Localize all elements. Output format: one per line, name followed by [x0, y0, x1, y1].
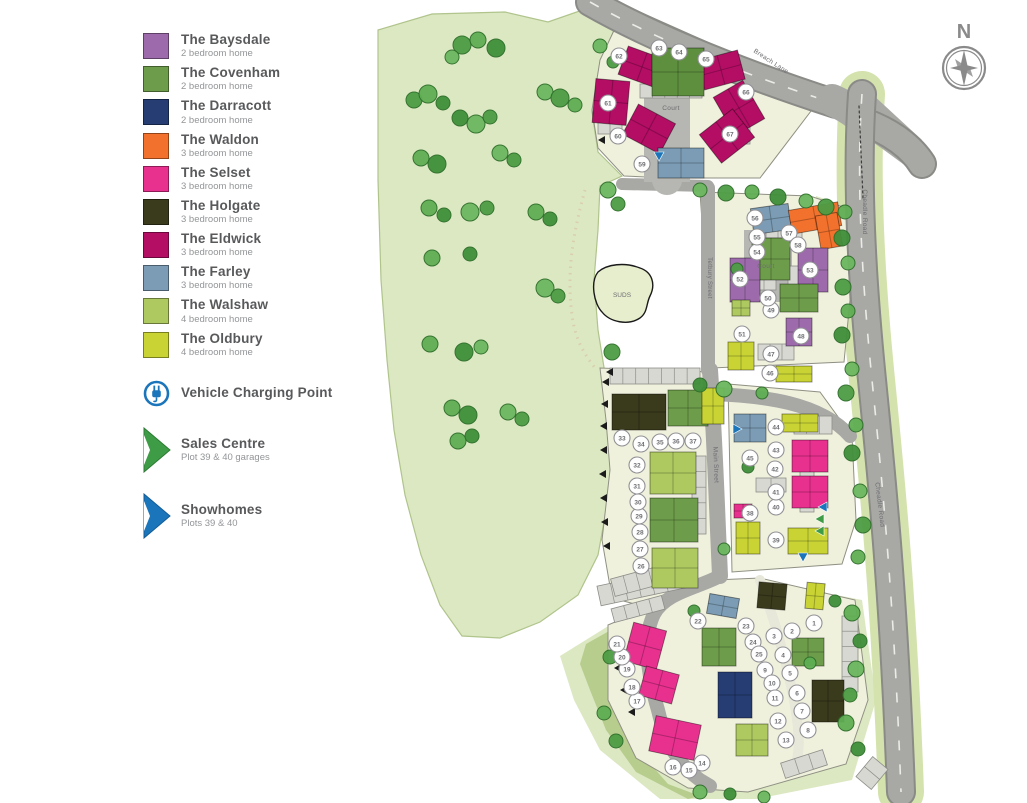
tree-icon: [716, 381, 732, 397]
sales-centre-label: Sales Centre: [181, 437, 270, 451]
plot-marker-40[interactable]: 40: [768, 499, 784, 515]
house-walshaw: [650, 452, 696, 494]
plot-marker-2[interactable]: 2: [784, 623, 800, 639]
tree-icon: [853, 484, 867, 498]
tree-icon: [770, 189, 786, 205]
tree-icon: [724, 788, 736, 800]
tree-icon: [444, 400, 460, 416]
tree-icon: [834, 327, 850, 343]
tree-icon: [718, 185, 734, 201]
tree-icon: [838, 715, 854, 731]
tree-icon: [604, 344, 620, 360]
tree-icon: [480, 201, 494, 215]
tree-icon: [844, 605, 860, 621]
tree-icon: [428, 155, 446, 173]
house-selset: [792, 476, 828, 508]
plot-marker-18[interactable]: 18: [624, 679, 640, 695]
svg-text:23: 23: [742, 623, 750, 630]
svg-text:9: 9: [763, 667, 767, 674]
plot-marker-27[interactable]: 27: [632, 541, 648, 557]
house-walshaw: [652, 548, 698, 588]
tree-icon: [745, 185, 759, 199]
plot-marker-37[interactable]: 37: [685, 433, 701, 449]
house-holgate: [612, 394, 666, 430]
legend-item-farley: The Farley 3 bedroom home: [143, 265, 393, 291]
svg-text:20: 20: [618, 654, 626, 661]
svg-text:65: 65: [702, 56, 710, 63]
legend-label: The Darracott: [181, 99, 271, 113]
svg-text:6: 6: [795, 690, 799, 697]
tree-icon: [756, 387, 768, 399]
svg-text:7: 7: [800, 708, 804, 715]
legend-sublabel: 3 bedroom home: [181, 214, 260, 225]
road-label: Court: [662, 105, 679, 112]
plot-marker-63[interactable]: 63: [651, 40, 667, 56]
showhomes-label: Showhomes: [181, 503, 262, 517]
tree-icon: [844, 445, 860, 461]
baysdale-swatch: [143, 33, 169, 59]
covenham-swatch: [143, 66, 169, 92]
svg-text:4: 4: [781, 652, 785, 659]
svg-text:43: 43: [772, 447, 780, 454]
svg-text:53: 53: [806, 267, 814, 274]
house-holgate: [757, 582, 787, 610]
legend-label: The Covenham: [181, 66, 280, 80]
svg-text:2: 2: [790, 628, 794, 635]
plot-marker-11[interactable]: 11: [767, 690, 783, 706]
plot-marker-1[interactable]: 1: [806, 615, 822, 631]
plot-marker-23[interactable]: 23: [738, 618, 754, 634]
svg-text:36: 36: [672, 438, 680, 445]
legend-sublabel: 2 bedroom home: [181, 115, 271, 126]
oldbury-swatch: [143, 332, 169, 358]
svg-text:40: 40: [772, 504, 780, 511]
tree-icon: [421, 200, 437, 216]
svg-text:34: 34: [637, 441, 645, 448]
svg-text:41: 41: [772, 489, 780, 496]
house-oldbury: [782, 414, 818, 432]
plot-marker-67[interactable]: 67: [722, 126, 738, 142]
plot-marker-36[interactable]: 36: [668, 433, 684, 449]
svg-text:15: 15: [685, 767, 693, 774]
tree-icon: [413, 150, 429, 166]
tree-icon: [459, 406, 477, 424]
tree-icon: [487, 39, 505, 57]
legend-label: The Waldon: [181, 133, 259, 147]
eldwick-swatch: [143, 232, 169, 258]
tree-icon: [609, 734, 623, 748]
svg-text:30: 30: [634, 499, 642, 506]
svg-text:60: 60: [614, 133, 622, 140]
tree-icon: [804, 657, 816, 669]
tree-icon: [467, 115, 485, 133]
road-label: Main Street: [711, 447, 719, 484]
plot-marker-56[interactable]: 56: [747, 210, 763, 226]
svg-text:11: 11: [772, 695, 779, 702]
plot-marker-8[interactable]: 8: [800, 722, 816, 738]
svg-text:38: 38: [746, 510, 754, 517]
svg-text:25: 25: [755, 651, 763, 658]
tree-icon: [528, 204, 544, 220]
plot-marker-54[interactable]: 54: [749, 244, 765, 260]
svg-text:18: 18: [628, 684, 636, 691]
tree-icon: [600, 182, 616, 198]
tree-icon: [465, 429, 479, 443]
house-covenham: [702, 628, 736, 666]
tree-icon: [818, 199, 834, 215]
svg-text:59: 59: [638, 161, 646, 168]
svg-text:64: 64: [675, 49, 683, 56]
legend-sublabel: 4 bedroom home: [181, 314, 268, 325]
tree-icon: [841, 256, 855, 270]
plot-marker-28[interactable]: 28: [632, 524, 648, 540]
svg-text:57: 57: [785, 230, 793, 237]
house-farley: [658, 148, 704, 178]
tree-icon: [838, 385, 854, 401]
plot-marker-30[interactable]: 30: [630, 494, 646, 510]
house-oldbury: [728, 342, 754, 370]
tree-icon: [436, 96, 450, 110]
legend-sublabel: 3 bedroom home: [181, 247, 261, 258]
tree-icon: [851, 550, 865, 564]
plot-marker-7[interactable]: 7: [794, 703, 810, 719]
showhomes-arrow-icon: [143, 493, 171, 539]
farley-swatch: [143, 265, 169, 291]
svg-text:39: 39: [772, 537, 780, 544]
svg-text:16: 16: [669, 764, 677, 771]
svg-text:56: 56: [751, 215, 759, 222]
tree-icon: [452, 110, 468, 126]
legend-label: The Farley: [181, 265, 253, 279]
house-darracott: [718, 672, 752, 718]
sales-centre-arrow-icon: [143, 427, 171, 473]
tree-icon: [593, 39, 607, 53]
tree-icon: [445, 50, 459, 64]
tree-icon: [853, 634, 867, 648]
plot-marker-53[interactable]: 53: [802, 262, 818, 278]
sales-centre-sublabel: Plot 39 & 40 garages: [181, 452, 270, 463]
plot-marker-33[interactable]: 33: [614, 430, 630, 446]
legend-item-walshaw: The Walshaw 4 bedroom home: [143, 298, 393, 324]
svg-text:10: 10: [768, 680, 776, 687]
walshaw-swatch: [143, 298, 169, 324]
tree-icon: [829, 595, 841, 607]
legend-item-sales-centre: Sales Centre Plot 39 & 40 garages: [143, 427, 393, 473]
tree-icon: [693, 785, 707, 799]
legend-item-oldbury: The Oldbury 4 bedroom home: [143, 332, 393, 358]
road-label: Court: [757, 263, 774, 270]
plot-marker-51[interactable]: 51: [734, 326, 750, 342]
tree-icon: [597, 706, 611, 720]
plot-marker-48[interactable]: 48: [793, 328, 809, 344]
house-oldbury: [805, 582, 825, 609]
house-walshaw: [736, 724, 768, 756]
plot-marker-39[interactable]: 39: [768, 532, 784, 548]
plot-marker-21[interactable]: 21: [609, 636, 625, 652]
legend-sublabel: 2 bedroom home: [181, 81, 280, 92]
compass-rose-icon: [940, 44, 988, 92]
plot-marker-26[interactable]: 26: [633, 558, 649, 574]
house-selset: [792, 440, 828, 472]
legend-label: The Selset: [181, 166, 253, 180]
selset-swatch: [143, 166, 169, 192]
road-label: Cheadle Road: [861, 189, 868, 234]
svg-text:54: 54: [753, 249, 761, 256]
darracott-swatch: [143, 99, 169, 125]
tree-icon: [419, 85, 437, 103]
plot-marker-3[interactable]: 3: [766, 628, 782, 644]
suds-label: SUDS: [613, 292, 632, 299]
tree-icon: [835, 279, 851, 295]
plot-marker-66[interactable]: 66: [738, 84, 754, 100]
svg-text:50: 50: [764, 295, 772, 302]
house-oldbury: [776, 366, 812, 382]
svg-text:51: 51: [738, 331, 746, 338]
plot-marker-44[interactable]: 44: [768, 419, 784, 435]
legend-sublabel: 3 bedroom home: [181, 181, 253, 192]
tree-icon: [758, 791, 770, 803]
house-walshaw: [732, 300, 750, 316]
plot-marker-31[interactable]: 31: [629, 478, 645, 494]
plot-marker-25[interactable]: 25: [751, 646, 767, 662]
tree-icon: [463, 247, 477, 261]
tree-icon: [483, 110, 497, 124]
legend: The Baysdale 2 bedroom home The Covenham…: [143, 33, 393, 539]
svg-text:35: 35: [656, 439, 664, 446]
plot-marker-32[interactable]: 32: [629, 457, 645, 473]
tree-icon: [437, 208, 451, 222]
charging-label: Vehicle Charging Point: [181, 386, 332, 400]
tree-icon: [841, 304, 855, 318]
waldon-swatch: [143, 133, 169, 159]
site-plan-page: SUDS123456789101112131415161718192021222…: [0, 0, 1027, 803]
svg-text:66: 66: [742, 89, 750, 96]
compass-north-label: N: [938, 22, 990, 42]
legend-sublabel: 4 bedroom home: [181, 347, 263, 358]
svg-text:29: 29: [635, 513, 643, 520]
tree-icon: [500, 404, 516, 420]
tree-icon: [424, 250, 440, 266]
svg-text:22: 22: [694, 618, 702, 625]
plot-marker-5[interactable]: 5: [782, 665, 798, 681]
plot-marker-12[interactable]: 12: [770, 713, 786, 729]
svg-text:58: 58: [794, 242, 802, 249]
plot-marker-58[interactable]: 58: [790, 237, 806, 253]
svg-text:31: 31: [633, 483, 641, 490]
plot-marker-42[interactable]: 42: [767, 461, 783, 477]
house-oldbury: [736, 522, 760, 554]
legend-item-covenham: The Covenham 2 bedroom home: [143, 66, 393, 92]
svg-text:26: 26: [637, 563, 645, 570]
svg-text:33: 33: [618, 435, 626, 442]
house-covenham: [780, 284, 818, 312]
tree-icon: [799, 194, 813, 208]
tree-icon: [455, 343, 473, 361]
svg-text:45: 45: [746, 455, 754, 462]
plot-marker-45[interactable]: 45: [742, 450, 758, 466]
legend-sublabel: 2 bedroom home: [181, 48, 270, 59]
svg-text:52: 52: [736, 276, 744, 283]
legend-label: The Eldwick: [181, 232, 261, 246]
tree-icon: [834, 230, 850, 246]
plot-marker-52[interactable]: 52: [732, 271, 748, 287]
svg-text:62: 62: [615, 53, 623, 60]
legend-item-darracott: The Darracott 2 bedroom home: [143, 99, 393, 125]
showhomes-sublabel: Plots 39 & 40: [181, 518, 262, 529]
tree-icon: [851, 742, 865, 756]
tree-icon: [611, 197, 625, 211]
tree-icon: [492, 145, 508, 161]
plot-marker-55[interactable]: 55: [749, 229, 765, 245]
vehicle-charging-icon: [143, 380, 171, 407]
legend-label: The Holgate: [181, 199, 260, 213]
tree-icon: [568, 98, 582, 112]
svg-text:44: 44: [772, 424, 780, 431]
tree-icon: [849, 418, 863, 432]
tree-icon: [551, 289, 565, 303]
svg-text:55: 55: [753, 234, 761, 241]
plot-marker-43[interactable]: 43: [768, 442, 784, 458]
legend-label: The Walshaw: [181, 298, 268, 312]
svg-text:28: 28: [636, 529, 644, 536]
plot-marker-62[interactable]: 62: [611, 48, 627, 64]
plot-marker-34[interactable]: 34: [633, 436, 649, 452]
svg-text:8: 8: [806, 727, 810, 734]
house-holgate: [812, 680, 844, 722]
svg-text:13: 13: [782, 737, 790, 744]
legend-sublabel: 3 bedroom home: [181, 280, 253, 291]
tree-icon: [470, 32, 486, 48]
plot-marker-6[interactable]: 6: [789, 685, 805, 701]
legend-label: The Baysdale: [181, 33, 270, 47]
svg-text:67: 67: [726, 131, 734, 138]
svg-text:47: 47: [767, 351, 775, 358]
tree-icon: [507, 153, 521, 167]
svg-text:37: 37: [689, 438, 697, 445]
legend-item-selset: The Selset 3 bedroom home: [143, 166, 393, 192]
svg-text:3: 3: [772, 633, 776, 640]
svg-text:48: 48: [797, 333, 805, 340]
svg-text:61: 61: [604, 100, 612, 107]
tree-icon: [551, 89, 569, 107]
plot-marker-61[interactable]: 61: [600, 95, 616, 111]
tree-icon: [848, 661, 864, 677]
plot-marker-65[interactable]: 65: [698, 51, 714, 67]
plot-marker-47[interactable]: 47: [763, 346, 779, 362]
plot-marker-4[interactable]: 4: [775, 647, 791, 663]
tree-icon: [693, 378, 707, 392]
plot-marker-16[interactable]: 16: [665, 759, 681, 775]
legend-item-showhomes: Showhomes Plots 39 & 40: [143, 493, 393, 539]
tree-icon: [693, 183, 707, 197]
svg-text:1: 1: [812, 620, 816, 627]
plot-marker-13[interactable]: 13: [778, 732, 794, 748]
legend-sublabel: 3 bedroom home: [181, 148, 259, 159]
svg-text:5: 5: [788, 670, 792, 677]
svg-text:32: 32: [633, 462, 641, 469]
tree-icon: [838, 205, 852, 219]
plot-marker-50[interactable]: 50: [760, 290, 776, 306]
plot-marker-41[interactable]: 41: [768, 484, 784, 500]
plot-marker-59[interactable]: 59: [634, 156, 650, 172]
svg-text:27: 27: [636, 546, 644, 553]
tree-icon: [515, 412, 529, 426]
svg-text:42: 42: [771, 466, 779, 473]
tree-icon: [422, 336, 438, 352]
legend-item-charging: Vehicle Charging Point: [143, 380, 393, 407]
plot-marker-22[interactable]: 22: [690, 613, 706, 629]
plot-marker-46[interactable]: 46: [762, 365, 778, 381]
road-label: Tetbury Street: [706, 257, 712, 299]
garage-block-8: [610, 368, 700, 384]
tree-icon: [718, 543, 730, 555]
legend-item-waldon: The Waldon 3 bedroom home: [143, 133, 393, 159]
svg-text:19: 19: [623, 666, 631, 673]
plot-marker-35[interactable]: 35: [652, 434, 668, 450]
tree-icon: [543, 212, 557, 226]
tree-icon: [474, 340, 488, 354]
svg-text:21: 21: [613, 641, 621, 648]
legend-label: The Oldbury: [181, 332, 263, 346]
plot-marker-64[interactable]: 64: [671, 44, 687, 60]
tree-icon: [855, 517, 871, 533]
plot-marker-38[interactable]: 38: [742, 505, 758, 521]
svg-text:46: 46: [766, 370, 774, 377]
plot-marker-10[interactable]: 10: [764, 675, 780, 691]
svg-text:63: 63: [655, 45, 663, 52]
svg-text:17: 17: [633, 698, 641, 705]
plot-marker-60[interactable]: 60: [610, 128, 626, 144]
tree-icon: [450, 433, 466, 449]
svg-text:49: 49: [767, 307, 775, 314]
svg-text:14: 14: [698, 760, 706, 767]
legend-item-holgate: The Holgate 3 bedroom home: [143, 199, 393, 225]
legend-item-eldwick: The Eldwick 3 bedroom home: [143, 232, 393, 258]
svg-text:24: 24: [749, 639, 757, 646]
holgate-swatch: [143, 199, 169, 225]
tree-icon: [843, 688, 857, 702]
house-covenham: [650, 498, 698, 542]
svg-text:12: 12: [774, 718, 782, 725]
tree-icon: [461, 203, 479, 221]
legend-item-baysdale: The Baysdale 2 bedroom home: [143, 33, 393, 59]
tree-icon: [845, 362, 859, 376]
compass: N: [938, 22, 990, 97]
plot-marker-15[interactable]: 15: [681, 762, 697, 778]
